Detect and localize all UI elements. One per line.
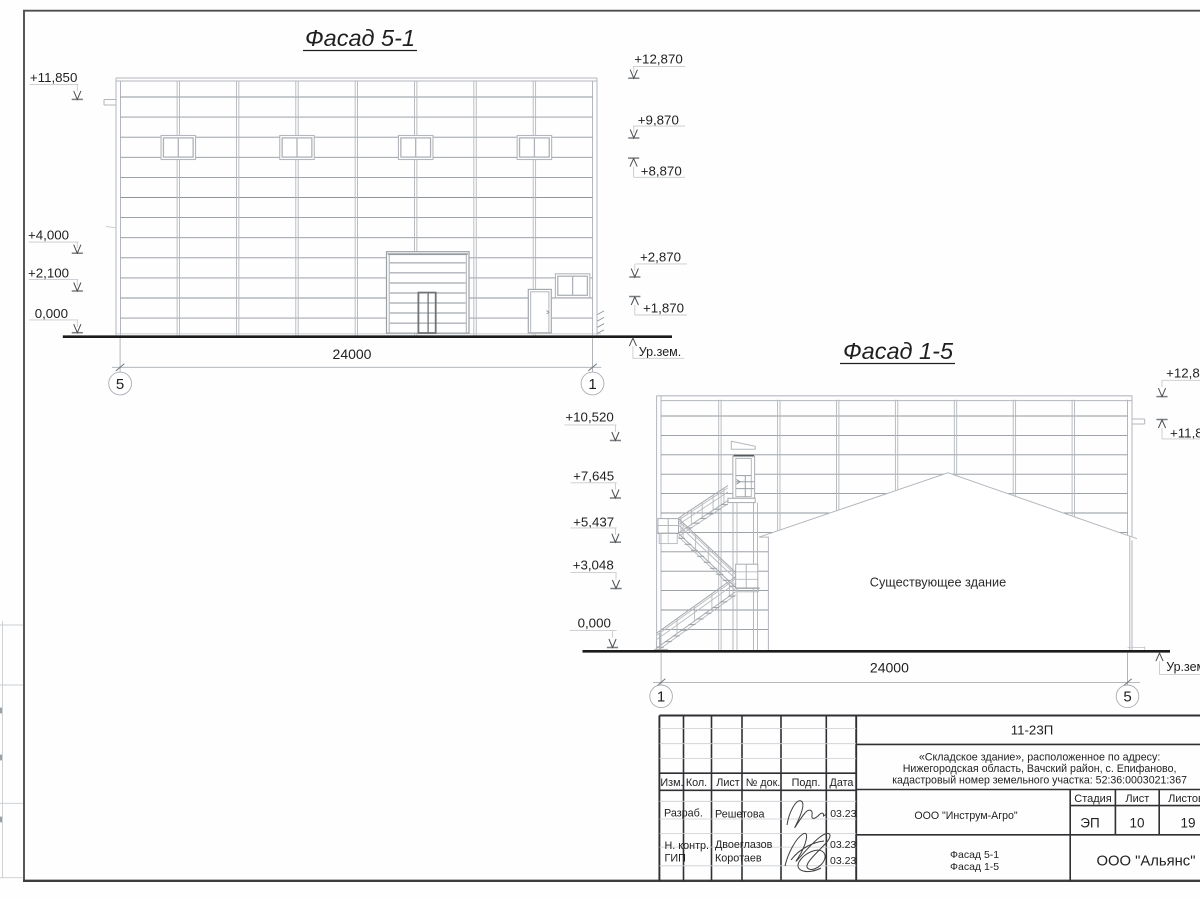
svg-text:24000: 24000 (870, 660, 909, 676)
svg-text:+12,870: +12,870 (634, 51, 682, 66)
svg-text:Коротаев: Коротаев (715, 853, 762, 865)
svg-text:Изм.: Изм. (660, 777, 683, 789)
svg-text:+7,645: +7,645 (573, 469, 614, 484)
svg-text:03.23: 03.23 (830, 839, 856, 851)
svg-text:«Складское здание», расположен: «Складское здание», расположенное по адр… (919, 751, 1161, 763)
svg-text:Существующее здание: Существующее здание (870, 576, 1006, 590)
svg-text:19: 19 (1180, 816, 1195, 831)
svg-text:кадастровый номер земельного у: кадастровый номер земельного участка: 52… (892, 775, 1187, 787)
svg-text:Решетова: Решетова (715, 809, 765, 821)
svg-text:03.23: 03.23 (830, 855, 856, 867)
svg-text:Лист: Лист (1125, 793, 1149, 805)
svg-text:+11,850: +11,850 (1170, 426, 1200, 441)
svg-text:1: 1 (588, 376, 596, 393)
svg-text:Фасад 5-1: Фасад 5-1 (305, 25, 415, 51)
svg-text:Листов: Листов (1168, 793, 1200, 805)
svg-text:+2,100: +2,100 (28, 266, 69, 281)
svg-text:Подп.: Подп. (792, 777, 821, 789)
svg-text:+10,520: +10,520 (565, 410, 613, 425)
svg-text:Стадия: Стадия (1074, 793, 1112, 805)
svg-text:ООО "Альянс": ООО "Альянс" (1097, 853, 1196, 869)
svg-text:+5,437: +5,437 (573, 514, 614, 529)
svg-text:+9,870: +9,870 (638, 112, 679, 127)
svg-text:№ док.: № док. (746, 777, 781, 789)
svg-text:10: 10 (1129, 816, 1144, 831)
svg-text:+4,000: +4,000 (28, 228, 69, 243)
svg-text:ЭП: ЭП (1080, 816, 1099, 831)
svg-text:+3,048: +3,048 (573, 557, 614, 572)
svg-text:Нижегородская область, Вачский: Нижегородская область, Вачский район, с.… (903, 763, 1177, 775)
svg-text:+2,870: +2,870 (640, 250, 681, 265)
svg-text:ООО "Инструм-Агро": ООО "Инструм-Агро" (914, 810, 1018, 822)
svg-text:0,000: 0,000 (578, 616, 611, 631)
svg-text:5: 5 (116, 376, 124, 393)
svg-text:Лист: Лист (716, 777, 740, 789)
svg-text:Двоеглазов: Двоеглазов (715, 839, 773, 851)
svg-text:Дата: Дата (830, 777, 854, 789)
svg-text:+12,870: +12,870 (1166, 366, 1200, 381)
svg-text:ГИП: ГИП (665, 853, 686, 865)
svg-text:24000: 24000 (333, 346, 372, 362)
svg-text:0,000: 0,000 (35, 306, 68, 321)
svg-text:Фасад 5-1: Фасад 5-1 (950, 849, 999, 861)
svg-text:Н. контр.: Н. контр. (665, 840, 710, 852)
svg-text:Ур.зем.: Ур.зем. (1166, 660, 1200, 674)
svg-text:Фасад 1-5: Фасад 1-5 (950, 861, 999, 873)
svg-text:1: 1 (657, 689, 665, 706)
svg-text:03.23: 03.23 (830, 808, 856, 820)
svg-text:Кол.: Кол. (686, 777, 707, 789)
svg-text:+11,850: +11,850 (30, 70, 77, 85)
svg-text:+8,870: +8,870 (641, 163, 682, 178)
svg-text:5: 5 (1123, 689, 1131, 706)
svg-text:Фасад 1-5: Фасад 1-5 (843, 338, 954, 364)
svg-text:Разраб.: Разраб. (664, 808, 703, 820)
svg-text:Ур.зем.: Ур.зем. (639, 345, 681, 359)
svg-text:+1,870: +1,870 (643, 301, 684, 316)
svg-text:11-23П: 11-23П (1011, 723, 1054, 738)
